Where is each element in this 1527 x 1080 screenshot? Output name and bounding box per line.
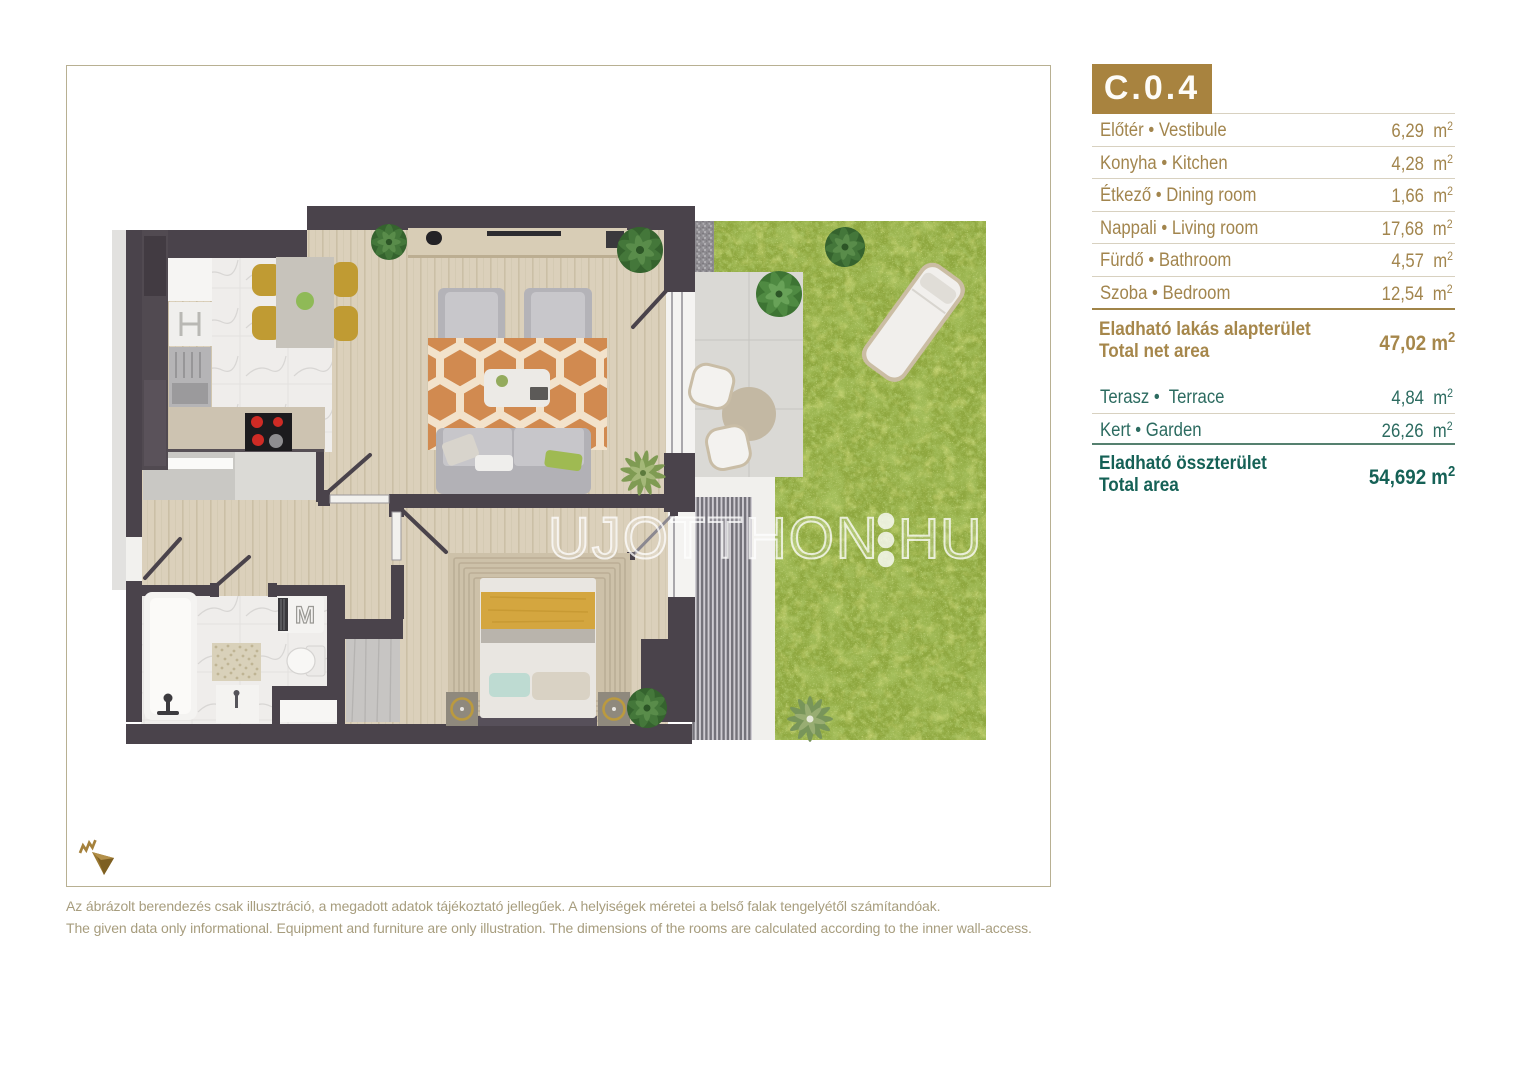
- svg-text:M: M: [295, 602, 315, 629]
- svg-text:UJOTTHON: UJOTTHON: [548, 506, 880, 571]
- svg-text:HU: HU: [898, 507, 982, 571]
